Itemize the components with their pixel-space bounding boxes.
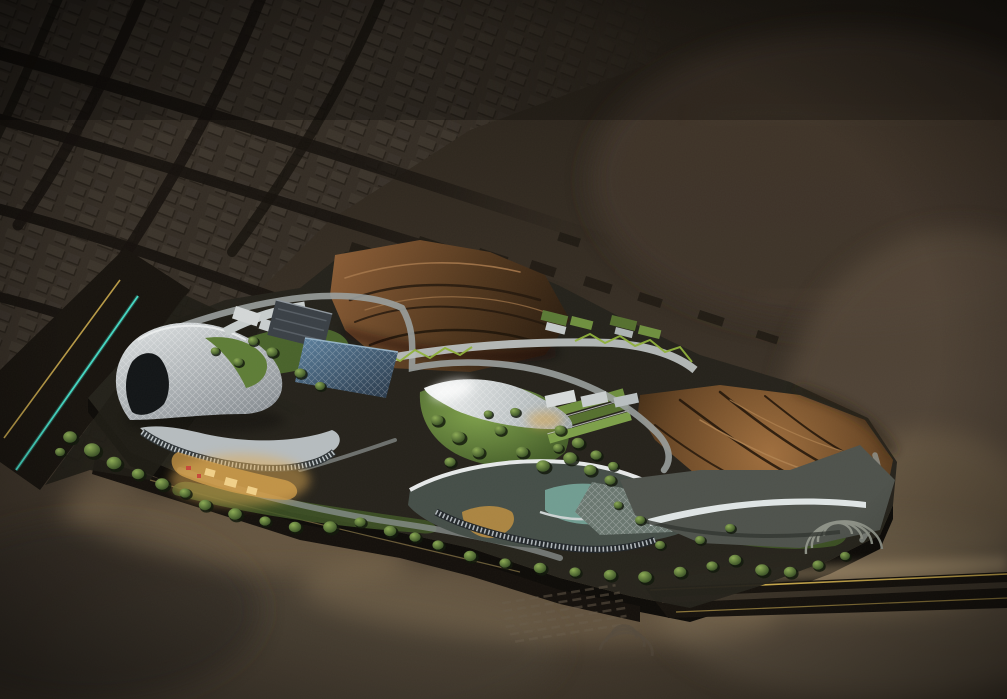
top-shade (0, 0, 1007, 120)
architectural-night-render (0, 0, 1007, 699)
masterplan-render-stage (0, 0, 1007, 699)
